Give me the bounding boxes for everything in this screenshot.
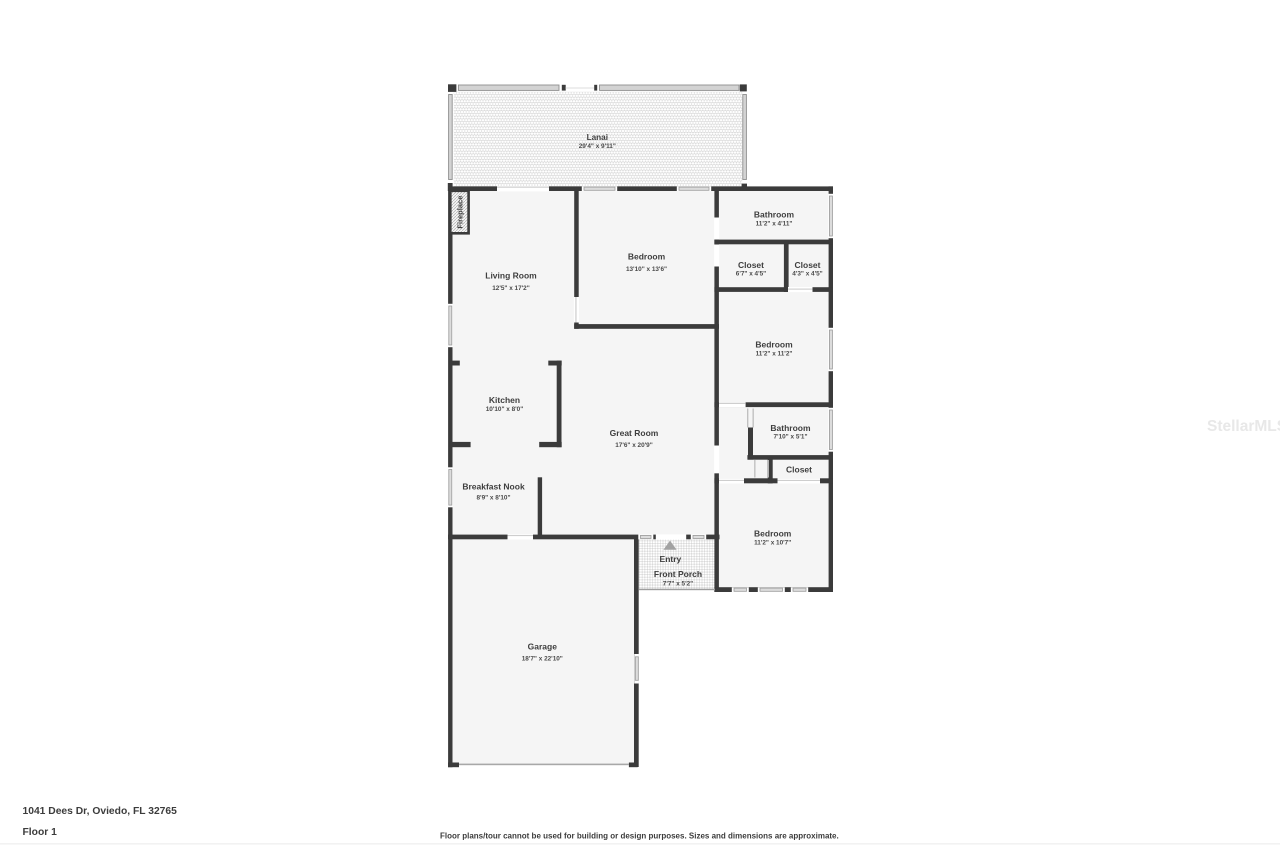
svg-text:Closet: Closet [738,260,764,270]
svg-text:Bathroom: Bathroom [770,423,811,433]
svg-text:Breakfast Nook: Breakfast Nook [462,482,525,492]
svg-text:6'7" x 4'5": 6'7" x 4'5" [736,270,766,277]
svg-text:Bathroom: Bathroom [754,210,795,220]
svg-text:18'7" x 22'10": 18'7" x 22'10" [522,655,563,662]
svg-text:13'10" x 13'6": 13'10" x 13'6" [626,266,667,273]
svg-text:11'2" x 4'11": 11'2" x 4'11" [756,220,793,227]
svg-text:7'7" x 5'2": 7'7" x 5'2" [663,580,693,587]
svg-text:Fireplace: Fireplace [455,196,464,229]
svg-text:Entry: Entry [660,554,682,564]
svg-text:Closet: Closet [795,260,821,270]
svg-text:17'6" x 20'9": 17'6" x 20'9" [615,442,653,449]
svg-text:Great Room: Great Room [610,428,659,438]
svg-text:4'3" x 4'5": 4'3" x 4'5" [792,270,822,277]
svg-text:Garage: Garage [528,642,558,652]
svg-text:11'2" x 10'7": 11'2" x 10'7" [754,540,791,547]
svg-text:8'9" x 8'10": 8'9" x 8'10" [477,494,511,501]
svg-text:1041 Dees Dr, Oviedo, FL 32765: 1041 Dees Dr, Oviedo, FL 32765 [23,806,178,817]
svg-text:7'10" x 5'1": 7'10" x 5'1" [774,434,808,441]
svg-text:Floor plans/tour cannot be use: Floor plans/tour cannot be used for buil… [440,832,839,841]
svg-text:10'10" x 8'0": 10'10" x 8'0" [486,406,524,413]
svg-text:Bedroom: Bedroom [755,340,793,350]
svg-text:29'4" x 9'11": 29'4" x 9'11" [579,143,616,150]
svg-text:12'5" x 17'2": 12'5" x 17'2" [492,285,530,292]
svg-text:Bedroom: Bedroom [754,529,792,539]
svg-text:StellarMLS: StellarMLS [1207,418,1280,435]
svg-text:Floor 1: Floor 1 [23,827,58,838]
svg-text:Lanai: Lanai [587,133,608,142]
svg-text:Living Room: Living Room [485,271,537,281]
svg-text:Kitchen: Kitchen [489,395,520,405]
svg-text:Front Porch: Front Porch [654,569,702,579]
svg-text:Closet: Closet [786,465,812,475]
svg-text:Bedroom: Bedroom [628,252,666,262]
svg-text:11'2" x 11'2": 11'2" x 11'2" [756,351,793,358]
